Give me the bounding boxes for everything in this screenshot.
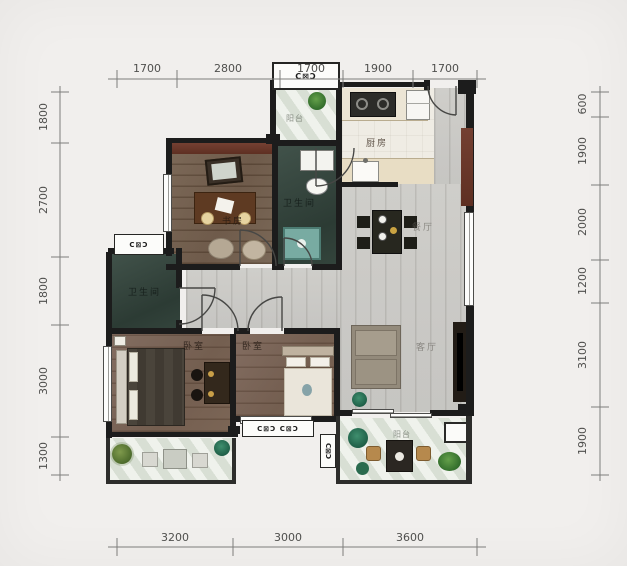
- dim-left-3: 1800: [37, 277, 50, 305]
- floorplan-canvas: C⊠Ɔ C⊠Ɔ C⊠Ɔ C⊠Ɔ C⊠Ɔ 书房 卫生间 厨房 餐厅 客厅 卫生间 …: [0, 0, 627, 566]
- dim-left-5: 1300: [37, 442, 50, 470]
- dim-right-3: 2000: [576, 208, 589, 236]
- dim-left-1: 1800: [37, 103, 50, 131]
- dim-right-4: 1200: [576, 267, 589, 295]
- dim-top-5: 1700: [431, 62, 459, 75]
- dim-right-2: 1900: [576, 137, 589, 165]
- dim-left-2: 2700: [37, 186, 50, 214]
- dim-top-3: 1700: [297, 62, 325, 75]
- dim-bottom-1: 3200: [161, 531, 189, 544]
- dim-left-4: 3000: [37, 367, 50, 395]
- dim-right-6: 1900: [576, 427, 589, 455]
- dim-bottom-2: 3000: [274, 531, 302, 544]
- dimension-lines: 1700 2800 1700 1900 1700 1800 2700 1800 …: [0, 0, 627, 566]
- dim-top-4: 1900: [364, 62, 392, 75]
- dim-top-1: 1700: [133, 62, 161, 75]
- dim-right-5: 3100: [576, 341, 589, 369]
- dim-right-1: 600: [576, 94, 589, 115]
- dim-bottom-3: 3600: [396, 531, 424, 544]
- dim-top-2: 2800: [214, 62, 242, 75]
